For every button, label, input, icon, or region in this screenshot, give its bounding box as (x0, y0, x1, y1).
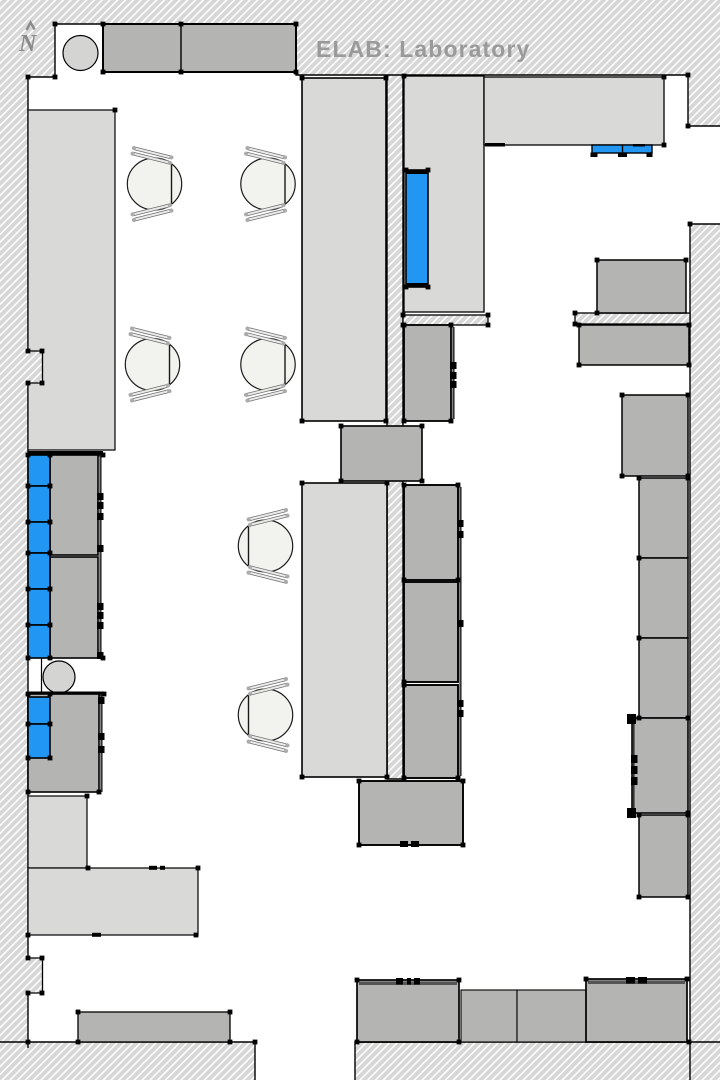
svg-text:ELAB: Laboratory: ELAB: Laboratory (316, 36, 530, 62)
svg-text:N: N (18, 31, 38, 57)
